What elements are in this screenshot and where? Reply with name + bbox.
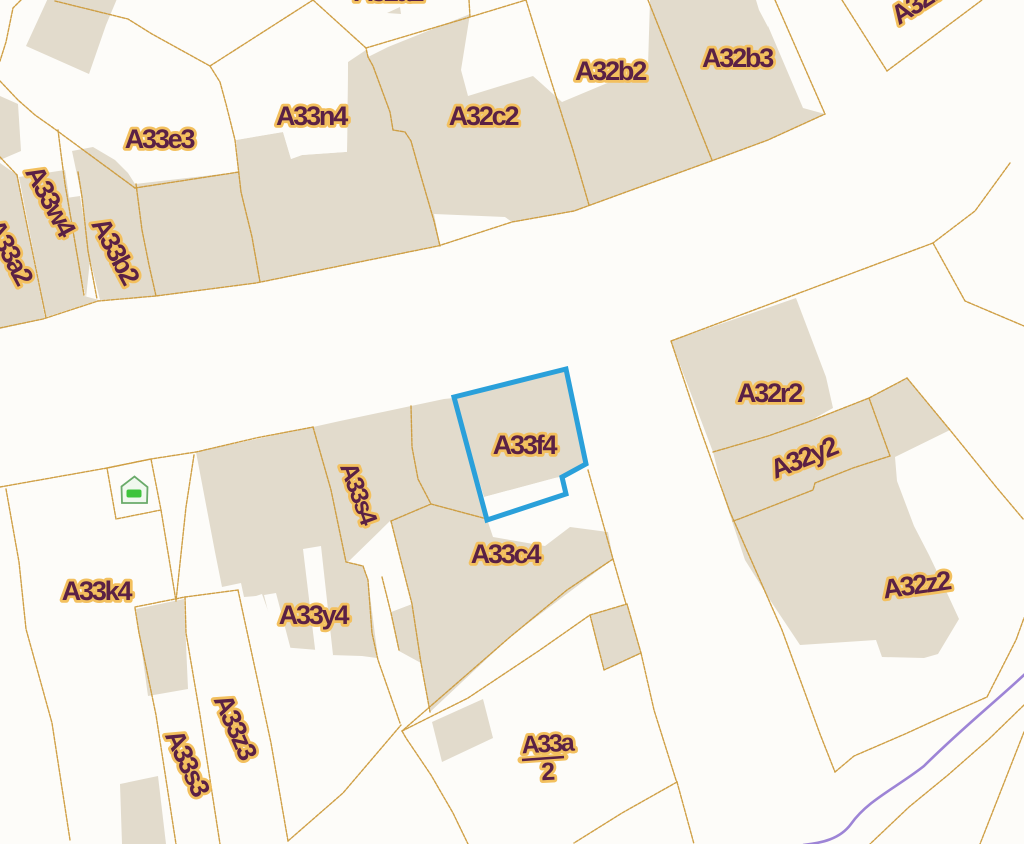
svg-text:A33y4: A33y4: [279, 600, 350, 630]
svg-text:A33e3: A33e3: [125, 124, 196, 154]
svg-text:A32r2: A32r2: [737, 378, 802, 408]
svg-text:A33c4: A33c4: [471, 539, 542, 569]
svg-text:A32c2: A32c2: [449, 101, 519, 131]
svg-text:A32b3: A32b3: [702, 43, 774, 73]
svg-text:A32b2: A32b2: [575, 56, 646, 86]
svg-text:A32a2: A32a2: [354, 0, 424, 7]
svg-text:A33n4: A33n4: [276, 101, 348, 131]
svg-text:A33f4: A33f4: [493, 430, 558, 460]
svg-text:A33k4: A33k4: [62, 576, 133, 606]
